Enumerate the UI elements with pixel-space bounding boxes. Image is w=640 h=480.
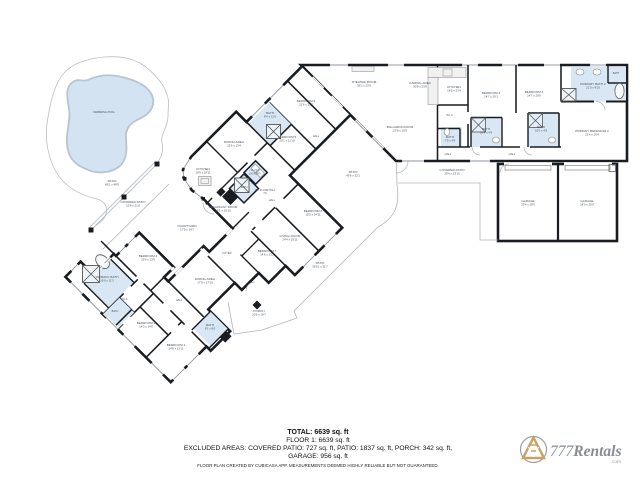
svg-text:HALL: HALL [313,134,320,138]
svg-text:W.I.C.: W.I.C. [121,297,128,301]
svg-text:EXCLUDED AREAS: COVERED PATIO:: EXCLUDED AREAS: COVERED PATIO: 727 sq. f… [184,445,452,452]
svg-text:14'8 x 13'11: 14'8 x 13'11 [168,347,184,351]
svg-text:FOYER: FOYER [223,251,232,255]
svg-text:FLOOR 1: 6639 sq. ft: FLOOR 1: 6639 sq. ft [286,437,350,444]
svg-text:23'8 x 16'5: 23'8 x 16'5 [393,129,407,133]
svg-text:10'4 x 4'9: 10'4 x 4'9 [480,131,493,135]
svg-text:7'5 x 4'9: 7'5 x 4'9 [445,139,456,143]
svg-text:HALL: HALL [509,152,516,156]
svg-text:BATH: BATH [241,185,248,189]
svg-text:86'1 x 48'5: 86'1 x 48'5 [105,183,119,187]
svg-text:36'10 x 31'7: 36'10 x 31'7 [312,265,328,269]
svg-text:LAUNDRY: LAUNDRY [249,172,262,176]
svg-text:15'5 x 14'11: 15'5 x 14'11 [305,213,321,217]
svg-text:W.I.C. /: W.I.C. / [251,168,260,172]
svg-text:22'8 x 21'0: 22'8 x 21'0 [126,204,140,208]
svg-text:SWIMMING POOL: SWIMMING POOL [93,110,115,114]
svg-text:49'6 x 32'1: 49'6 x 32'1 [346,174,360,178]
svg-text:30'8 x 23'6: 30'8 x 23'6 [413,85,427,89]
svg-text:777Rentals: 777Rentals [550,443,621,460]
svg-text:16'4 x 13'6: 16'4 x 13'6 [141,258,155,262]
svg-text:20'1 x 11'10: 20'1 x 11'10 [279,139,295,143]
svg-text:24'4 x 19'11: 24'4 x 19'11 [282,238,298,242]
svg-text:20'5 x 16'7: 20'5 x 16'7 [252,313,266,317]
svg-text:22'6 x 13'7: 22'6 x 13'7 [299,103,313,107]
svg-text:22'6 x 13'4: 22'6 x 13'4 [227,144,241,148]
svg-text:21'0 x 9'10: 21'0 x 9'10 [586,86,600,90]
svg-text:HALL: HALL [269,198,276,202]
svg-text:21'4 x 16'4: 21'4 x 16'4 [585,133,599,137]
svg-text:14'3 x 14'0: 14'3 x 14'0 [139,325,153,329]
svg-text:FLOOR PLAN CREATED BY CUBICASA: FLOOR PLAN CREATED BY CUBICASA APP. MEAS… [197,463,438,468]
svg-text:BATH: BATH [112,309,119,313]
svg-text:23'4 x 25'0: 23'4 x 25'0 [521,203,535,207]
svg-text:TOTAL: 6639 sq. ft: TOTAL: 6639 sq. ft [287,429,349,436]
svg-text:8'4 x 11'6: 8'4 x 11'6 [264,115,276,119]
svg-text:HALL: HALL [176,298,183,302]
svg-text:10'0 x 4'9: 10'0 x 4'9 [535,129,548,133]
svg-text:W.I.C.: W.I.C. [446,113,454,117]
svg-text:.com: .com [611,460,621,465]
svg-text:24'0 x 25'0: 24'0 x 25'0 [580,203,594,207]
svg-text:19'9 x 14'11: 19'9 x 14'11 [195,171,211,175]
svg-text:BATH: BATH [613,72,620,75]
svg-text:GARAGE: 956 sq. ft: GARAGE: 956 sq. ft [288,453,348,460]
svg-text:30'4 x 13'10: 30'4 x 13'10 [444,172,460,176]
svg-text:HALL: HALL [445,152,452,156]
svg-text:9'1 x 8'0: 9'1 x 8'0 [205,327,216,331]
svg-text:17'9 x 17'10: 17'9 x 17'10 [197,281,213,285]
svg-text:36'1 x 23'9: 36'1 x 23'9 [357,84,371,88]
svg-text:14'5 x 13'4: 14'5 x 13'4 [447,89,461,93]
svg-text:14'7 x 20'0: 14'7 x 20'0 [527,94,541,98]
svg-text:14'7 x 20'1: 14'7 x 20'1 [484,95,498,99]
svg-text:14'1 x 10'10: 14'1 x 10'10 [215,209,231,213]
svg-text:14'6 x 13'2: 14'6 x 13'2 [260,253,274,257]
svg-text:16'0 x 11'3: 16'0 x 11'3 [100,279,114,283]
svg-text:17'9 x 14'7: 17'9 x 14'7 [180,228,194,232]
